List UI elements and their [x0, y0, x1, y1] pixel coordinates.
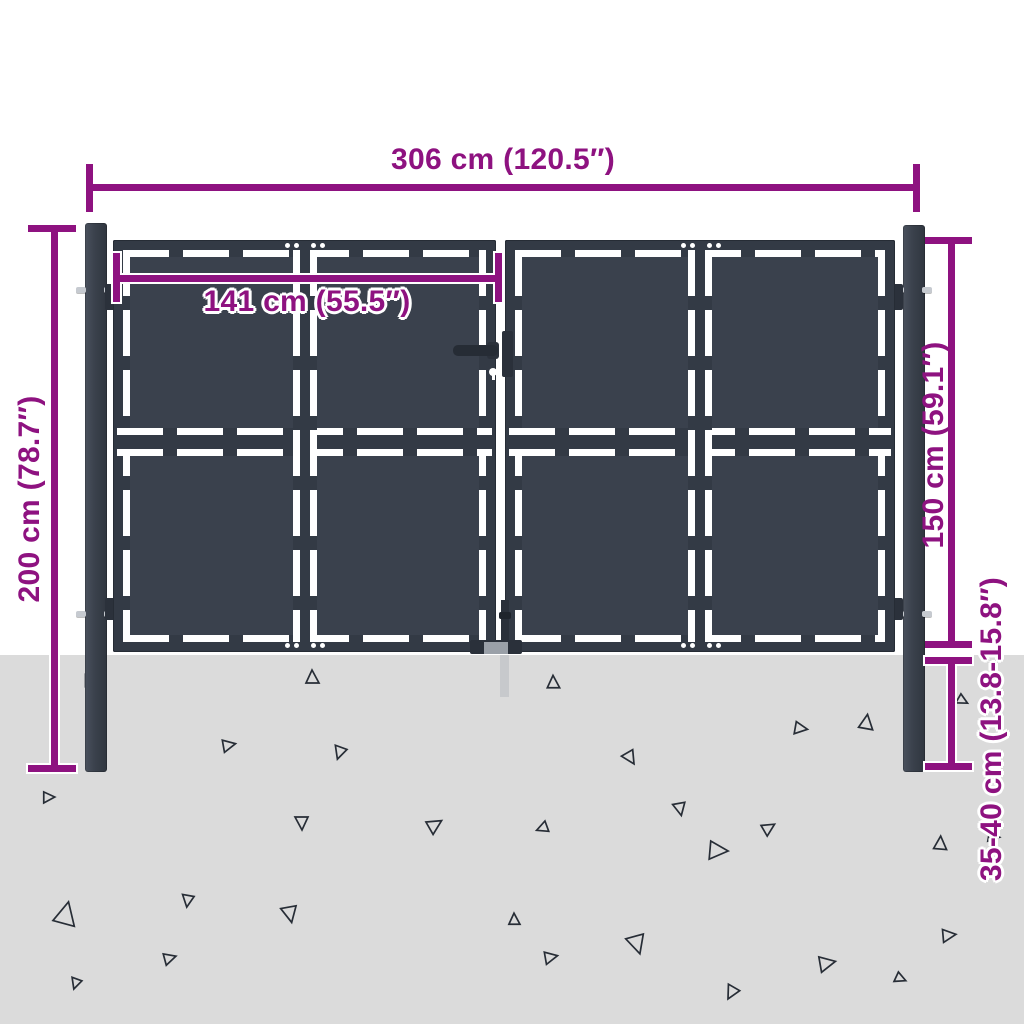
screw: [294, 643, 299, 648]
screw: [873, 429, 878, 434]
screw: [294, 243, 299, 248]
screw: [690, 643, 695, 648]
dimension-end-cap: [28, 225, 76, 232]
hinge-pin: [76, 611, 86, 617]
dimension-line: [88, 184, 918, 191]
screw: [707, 243, 712, 248]
dimension-label-total-width: 306 cm (120.5″): [103, 143, 903, 177]
screw: [716, 243, 721, 248]
screw: [320, 643, 325, 648]
screw: [881, 429, 886, 434]
gate-handle: [453, 345, 498, 356]
keyhole-icon: [489, 368, 497, 376]
screw: [285, 643, 290, 648]
screw: [117, 429, 122, 434]
gate-leaf-right: [505, 240, 895, 652]
screw: [681, 243, 686, 248]
leaf-mid-stile: [695, 250, 705, 642]
dimension-label-ground-depth: 35-40 cm (13.8-15.8″): [975, 529, 1009, 929]
screw: [311, 243, 316, 248]
drop-rod-underground: [500, 655, 509, 697]
dimension-label-gate-height: 150 cm (59.1″): [917, 245, 951, 645]
gate-post-left: [85, 223, 107, 772]
screw: [707, 643, 712, 648]
screw: [117, 451, 122, 456]
screw: [881, 451, 886, 456]
drop-rod-collar: [499, 612, 511, 619]
screw: [311, 643, 316, 648]
dimension-end-cap: [86, 164, 93, 212]
dimension-end-cap: [925, 237, 972, 244]
dimension-end-cap: [913, 164, 920, 212]
screw: [125, 429, 130, 434]
dimension-label-post-height: 200 cm (78.7″): [13, 299, 47, 699]
gravel-triangles: [0, 655, 1024, 1024]
hinge-pin: [76, 287, 86, 293]
screw: [285, 243, 290, 248]
drop-rod-bracket-inner: [484, 642, 508, 654]
screw: [320, 243, 325, 248]
screw: [690, 243, 695, 248]
lock-plate: [502, 331, 513, 377]
screw: [125, 451, 130, 456]
product-diagram: 306 cm (120.5″) 141 cm (55.5″) 200 cm (7…: [0, 0, 1024, 1024]
dimension-label-leaf-width: 141 cm (55.5″): [107, 285, 507, 319]
leaf-stile-line: [705, 250, 712, 642]
screw: [873, 451, 878, 456]
screw: [716, 643, 721, 648]
leaf-stile-line: [688, 250, 695, 642]
screw: [681, 643, 686, 648]
